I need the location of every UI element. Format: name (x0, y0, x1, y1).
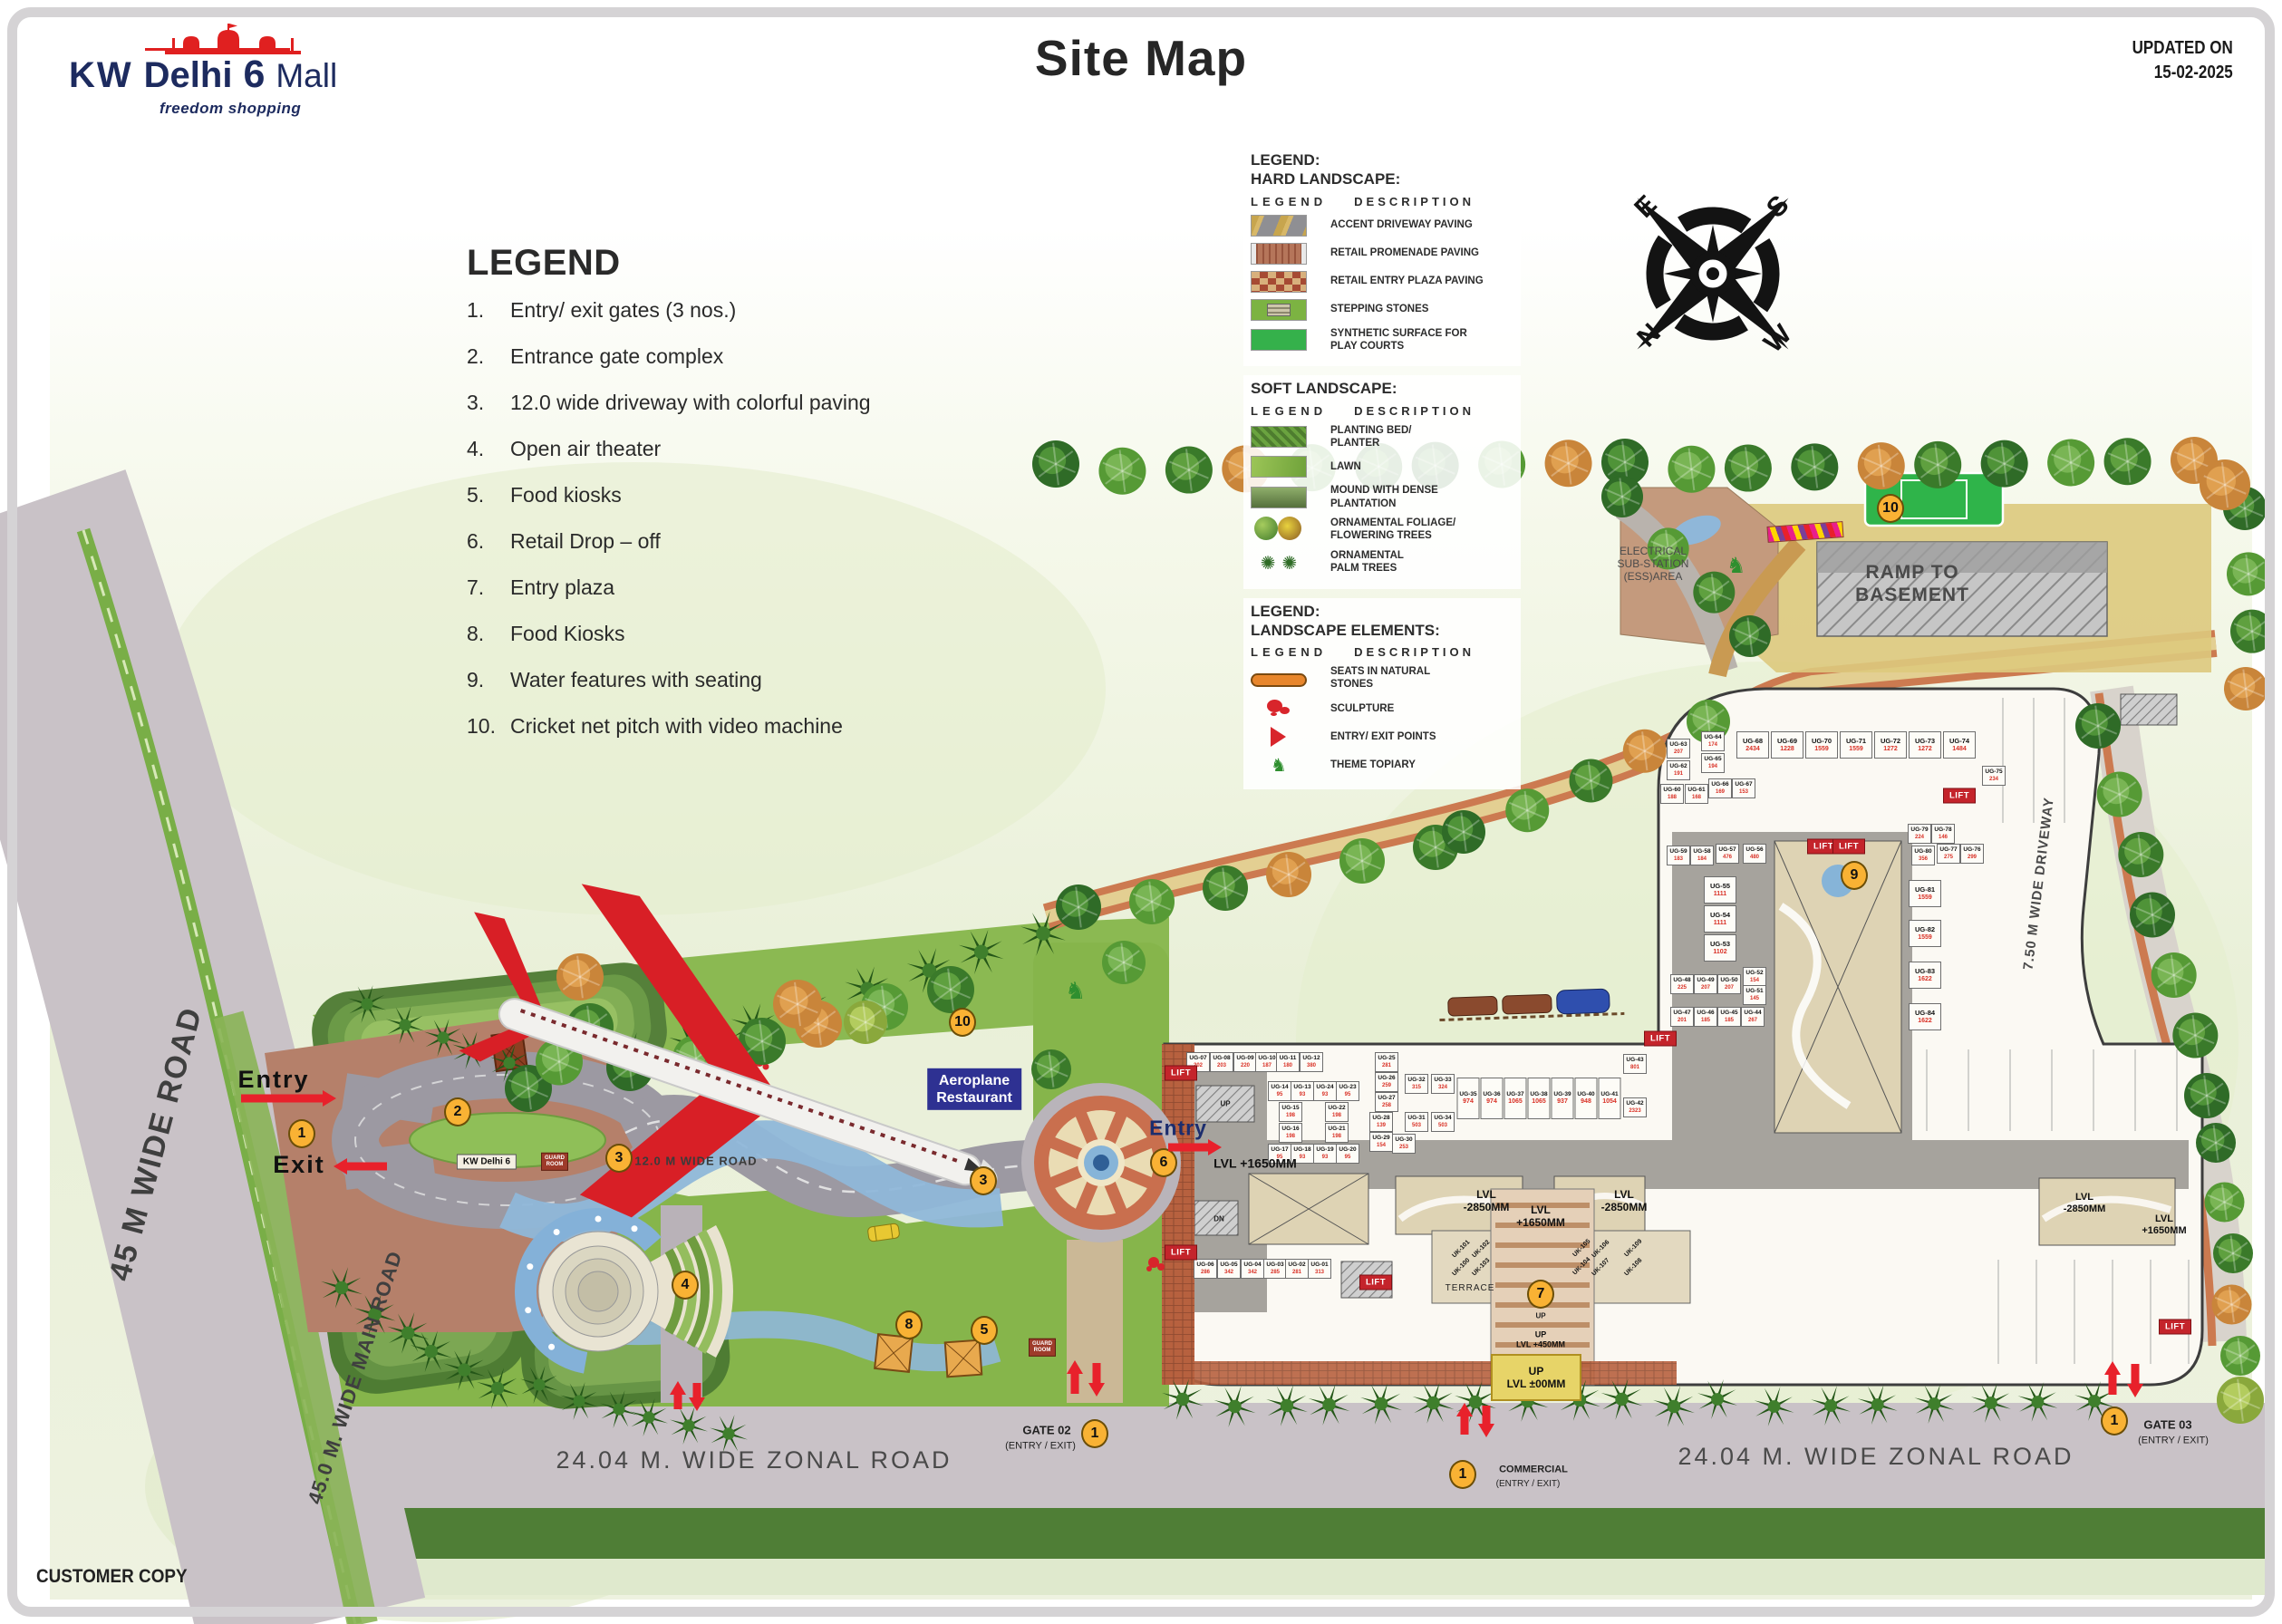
tree-icon (2205, 1183, 2245, 1223)
unit-ug-49: UG-49207 (1694, 974, 1717, 994)
direction-arrow-icon (1481, 1406, 1492, 1436)
map-label: LVL +1650MM (1516, 1203, 1565, 1229)
badge-10: 10 (1877, 494, 1904, 523)
tree-icon (1693, 572, 1735, 614)
map-label: 24.04 M. WIDE ZONAL ROAD (1678, 1443, 2074, 1472)
unit-ug-04: UG-04342 (1241, 1259, 1264, 1279)
unit-ug-48: UG-48225 (1670, 974, 1694, 994)
unit-ug-58: UG-58184 (1690, 846, 1714, 865)
direction-arrow-icon (1091, 1363, 1102, 1396)
badge-3: 3 (970, 1166, 997, 1195)
map-label: COMMERCIAL (1499, 1464, 1568, 1476)
unit-ug-14: UG-1495 (1268, 1081, 1291, 1101)
unit-ug-65: UG-65194 (1701, 753, 1725, 773)
legend-swatch-item: PLANTING BED/ PLANTER (1251, 424, 1513, 450)
unit-ug-31: UG-31503 (1405, 1112, 1428, 1132)
tree-icon (1545, 440, 1592, 487)
unit-ug-70: UG-701559 (1805, 731, 1838, 759)
tree-icon (2217, 1377, 2264, 1424)
map-label: DN (1214, 1214, 1224, 1223)
site-map-page: ♞ ♞ N E (0, 0, 2282, 1624)
unit-ug-12: UG-12380 (1300, 1052, 1323, 1072)
tree-icon (2220, 1336, 2260, 1376)
tree-icon (2097, 772, 2142, 817)
tree-icon (1098, 448, 1146, 495)
legend-item: 9.Water features with seating (467, 668, 871, 692)
unit-ug-02: UG-02281 (1285, 1259, 1309, 1279)
tree-icon (1031, 1049, 1071, 1089)
entry-exit-points-icon (1251, 726, 1307, 748)
unit-ug-62: UG-62191 (1667, 760, 1690, 780)
legend-item: 3.12.0 wide driveway with colorful pavin… (467, 391, 871, 415)
ornamental-trees-icon (1251, 518, 1307, 540)
unit-ug-05: UG-05342 (1217, 1259, 1241, 1279)
unit-ug-55: UG-551111 (1704, 876, 1736, 904)
legend-swatch-item: SYNTHETIC SURFACE FOR PLAY COURTS (1251, 327, 1513, 353)
road-green-strip (299, 1508, 2273, 1559)
badge-1: 1 (2101, 1406, 2128, 1435)
unit-ug-33: UG-33324 (1431, 1074, 1455, 1094)
badge-4: 4 (672, 1271, 699, 1300)
tree-icon (1725, 445, 1772, 492)
unit-ug-24: UG-2493 (1313, 1081, 1337, 1101)
lift-label: LIFT (1832, 839, 1865, 855)
unit-ug-35: UG-35974 (1457, 1078, 1480, 1119)
direction-arrow-icon (2107, 1362, 2118, 1395)
legend-swatch-item: LAWN (1251, 456, 1513, 478)
tree-icon (2184, 1073, 2229, 1118)
stepping-stones-icon (1251, 299, 1307, 321)
tree-icon (2104, 438, 2151, 485)
lift-label: LIFT (1644, 1031, 1677, 1047)
compass-rose-icon: N E S W (1602, 163, 1823, 384)
unit-ug-22: UG-22198 (1325, 1102, 1349, 1122)
unit-ug-34: UG-34503 (1431, 1112, 1455, 1132)
tree-icon (1981, 440, 2028, 488)
direction-arrow-icon (241, 1093, 335, 1104)
unit-ug-53: UG-531102 (1704, 934, 1736, 962)
unit-ug-57: UG-57476 (1716, 844, 1739, 864)
legend-swatch-item: STEPPING STONES (1251, 299, 1513, 321)
lift-label: LIFT (1359, 1275, 1392, 1290)
legend-swatch-item: ORNAMENTAL FOLIAGE/ FLOWERING TREES (1251, 517, 1513, 543)
logo-6: 6 (243, 53, 265, 97)
direction-arrow-icon (2130, 1364, 2141, 1397)
unit-ug-06: UG-06286 (1194, 1259, 1217, 1279)
tree-icon (927, 966, 974, 1013)
guard-room-sign: GUARD ROOM (541, 1153, 568, 1171)
unit-ug-27: UG-27258 (1375, 1092, 1398, 1112)
tree-icon (773, 980, 822, 1029)
map-label: LVL -2850MM (1601, 1188, 1648, 1213)
unit-ug-56: UG-56480 (1743, 844, 1766, 864)
aeroplane-restaurant-sign: AeroplaneRestaurant (927, 1068, 1021, 1110)
badge-1: 1 (1449, 1460, 1476, 1489)
legend-item: 8.Food Kiosks (467, 622, 871, 646)
unit-ug-73: UG-731272 (1909, 731, 1941, 759)
map-label: 24.04 M. WIDE ZONAL ROAD (556, 1446, 952, 1475)
tree-icon (1102, 941, 1146, 984)
map-label: (ENTRY / EXIT) (2138, 1435, 2209, 1447)
legend-swatch-item: THEME TOPIARY (1251, 754, 1513, 776)
unit-ug-83: UG-831622 (1909, 962, 1941, 989)
unit-ug-21: UG-21198 (1325, 1123, 1349, 1143)
unit-ug-84: UG-841622 (1909, 1003, 1941, 1030)
legend-panels: LEGEND: HARD LANDSCAPE: LEGENDDESCRIPTIO… (1243, 147, 1521, 798)
legend-swatch-item: SEATS IN NATURAL STONES (1251, 665, 1513, 691)
tree-icon (1266, 852, 1311, 897)
badge-1: 1 (1081, 1419, 1108, 1448)
tree-icon (2212, 1285, 2252, 1325)
unit-ug-39: UG-39937 (1552, 1078, 1574, 1119)
seats-natural-stones-icon (1251, 673, 1307, 687)
ornamental-palms-icon (1251, 551, 1307, 573)
tree-icon (2230, 610, 2274, 653)
legend-swatch-item: MOUND WITH DENSE PLANTATION (1251, 484, 1513, 510)
tree-icon (1032, 440, 1079, 488)
tree-icon (2224, 667, 2267, 710)
unit-ug-13: UG-1393 (1291, 1081, 1314, 1101)
map-label: Entry (237, 1066, 309, 1095)
unit-ug-09: UG-09220 (1233, 1052, 1257, 1072)
legend-list: LEGEND 1.Entry/ exit gates (3 nos.)2.Ent… (467, 243, 871, 760)
lawn-icon (1251, 456, 1307, 478)
unit-ug-26: UG-26259 (1375, 1072, 1398, 1092)
unit-ug-54: UG-541111 (1704, 905, 1736, 933)
lift-label: LIFT (1943, 788, 1976, 804)
tree-icon (1570, 759, 1613, 803)
page-title: Site Map (1035, 29, 1247, 87)
map-label: LVL +1650MM (2142, 1213, 2186, 1237)
tree-icon (1623, 730, 1667, 773)
unit-ug-77: UG-77275 (1937, 844, 1960, 864)
map-label: 12.0 M WIDE ROAD (634, 1154, 757, 1167)
unit-ug-25: UG-25281 (1375, 1052, 1398, 1072)
badge-7: 7 (1527, 1280, 1554, 1309)
map-label: LVL -2850MM (2064, 1192, 2105, 1215)
red-fort-icon (165, 20, 301, 56)
map-label: GATE 02 (1022, 1423, 1070, 1436)
unit-ug-67: UG-67153 (1732, 778, 1755, 798)
unit-ug-44: UG-44267 (1741, 1007, 1765, 1027)
stairs (2121, 694, 2177, 725)
badge-8: 8 (895, 1310, 923, 1339)
unit-ug-23: UG-2395 (1336, 1081, 1359, 1101)
updated-on: UPDATED ON 15-02-2025 (2132, 36, 2233, 85)
badge-2: 2 (444, 1097, 471, 1126)
unit-ug-74: UG-741484 (1943, 731, 1976, 759)
tree-icon (1858, 442, 1905, 489)
tree-icon (1729, 615, 1771, 657)
direction-arrow-icon (334, 1161, 387, 1172)
logo: KWDelhi6Mall freedom shopping (69, 20, 337, 118)
tree-icon (1129, 879, 1175, 924)
lift-label: LIFT (2159, 1319, 2191, 1335)
unit-ug-50: UG-50207 (1717, 974, 1741, 994)
landscape-elements-legend: LEGEND: LANDSCAPE ELEMENTS: LEGENDDESCRI… (1243, 598, 1521, 789)
tree-icon (2200, 459, 2250, 510)
unit-ug-71: UG-711559 (1840, 731, 1872, 759)
map-label: UP (1220, 1099, 1230, 1107)
unit-ug-61: UG-61168 (1685, 784, 1708, 804)
unit-ug-75: UG-75234 (1982, 766, 2006, 786)
legend-item: 1.Entry/ exit gates (3 nos.) (467, 298, 871, 323)
badge-9: 9 (1841, 861, 1868, 890)
unit-ug-43: UG-43801 (1623, 1054, 1647, 1074)
tree-icon (556, 953, 604, 1000)
direction-arrow-icon (1459, 1404, 1470, 1435)
legend-item: 5.Food kiosks (467, 483, 871, 507)
mound-icon (1251, 487, 1307, 508)
legend-swatch-item: SCULPTURE (1251, 698, 1513, 720)
tree-icon (1056, 884, 1101, 930)
accent-driveway-icon (1251, 215, 1307, 237)
tree-icon (2213, 1233, 2253, 1273)
tree-icon (1442, 810, 1485, 854)
unit-ug-28: UG-28139 (1369, 1112, 1393, 1132)
legend-item: 10.Cricket net pitch with video machine (467, 714, 871, 739)
badge-5: 5 (971, 1316, 998, 1345)
unit-ug-68: UG-682434 (1736, 731, 1769, 759)
badge-1: 1 (288, 1119, 315, 1148)
unit-ug-40: UG-40948 (1575, 1078, 1598, 1119)
theme-topiary-icon: ♞ (1726, 553, 1746, 578)
kw-delhi-6-sign: KW Delhi 6 (457, 1155, 517, 1170)
logo-tagline: freedom shopping (160, 100, 337, 118)
badge-3: 3 (605, 1144, 633, 1173)
logo-kw: KW (69, 55, 133, 96)
theme-topiary-icon (1251, 754, 1307, 776)
unit-ug-63: UG-63207 (1667, 739, 1690, 759)
lift-label: LIFT (1165, 1066, 1197, 1081)
map-label: Entry (1149, 1116, 1207, 1140)
tree-icon (1668, 446, 1715, 493)
tree-icon (2172, 1013, 2218, 1058)
map-label: UP LVL +450MM (1516, 1329, 1565, 1348)
tree-icon (1339, 838, 1385, 884)
legend-swatch-item: ENTRY/ EXIT POINTS (1251, 726, 1513, 748)
unit-ug-42: UG-422323 (1623, 1097, 1647, 1117)
direction-arrow-icon (1168, 1142, 1221, 1153)
legend-swatch-item: ACCENT DRIVEWAY PAVING (1251, 215, 1513, 237)
unit-ug-30: UG-30253 (1392, 1134, 1416, 1154)
unit-ug-66: UG-66169 (1708, 778, 1732, 798)
unit-ug-59: UG-59183 (1667, 846, 1690, 865)
guard-room-sign: GUARD ROOM (1029, 1339, 1056, 1357)
tree-icon (1791, 443, 1838, 490)
unit-ug-15: UG-15198 (1279, 1102, 1302, 1122)
unit-ug-80: UG-80356 (1911, 846, 1935, 865)
lift-label: LIFT (1165, 1245, 1197, 1261)
tree-icon (2047, 439, 2094, 486)
unit-ug-82: UG-821559 (1909, 920, 1941, 947)
unit-ug-03: UG-03285 (1263, 1259, 1287, 1279)
legend-swatch-item: RETAIL PROMENADE PAVING (1251, 243, 1513, 265)
legend-item: 2.Entrance gate complex (467, 344, 871, 369)
map-label: (ENTRY / EXIT) (1496, 1479, 1561, 1490)
soft-landscape-legend: SOFT LANDSCAPE: LEGENDDESCRIPTION PLANTI… (1243, 375, 1521, 588)
unit-ug-64: UG-64174 (1701, 731, 1725, 751)
unit-ug-11: UG-11180 (1276, 1052, 1300, 1072)
unit-ug-08: UG-08203 (1210, 1052, 1233, 1072)
legend-swatch-item: ORNAMENTAL PALM TREES (1251, 549, 1513, 575)
unit-ug-72: UG-721272 (1874, 731, 1907, 759)
badge-10: 10 (949, 1008, 976, 1037)
sculpture-icon (1251, 698, 1307, 720)
unit-ug-01: UG-01313 (1308, 1259, 1331, 1279)
tree-icon (2118, 832, 2163, 877)
tree-icon (1165, 447, 1213, 494)
unit-ug-16: UG-16198 (1279, 1123, 1302, 1143)
tree-icon (2075, 703, 2121, 749)
unit-ug-41: UG-411054 (1599, 1078, 1621, 1119)
updated-label: UPDATED ON (2132, 36, 2233, 61)
unit-ug-81: UG-811559 (1909, 880, 1941, 907)
unit-ug-32: UG-32315 (1405, 1074, 1428, 1094)
legend-swatch-item: RETAIL ENTRY PLAZA PAVING (1251, 271, 1513, 293)
map-label: UP (1535, 1311, 1545, 1319)
map-label: LVL +1650MM (1214, 1156, 1297, 1172)
map-label: LVL -2850MM (1464, 1188, 1510, 1213)
legend-title: LEGEND (467, 243, 871, 284)
unit-ug-36: UG-36974 (1481, 1078, 1504, 1119)
unit-ug-52: UG-52154 (1743, 967, 1766, 987)
retail-promenade (1162, 1044, 1194, 1385)
tree-icon (1601, 476, 1643, 517)
retail-entry-plaza-icon (1251, 271, 1307, 293)
tree-icon (2196, 1123, 2236, 1163)
unit-ug-69: UG-691228 (1771, 731, 1803, 759)
tree-icon (1203, 865, 1248, 911)
unit-ug-79: UG-79224 (1908, 824, 1931, 844)
map-label: GATE 03 (2143, 1417, 2191, 1431)
legend-item: 4.Open air theater (467, 437, 871, 461)
map-label: Exit (273, 1151, 325, 1180)
map-label: TERRACE (1446, 1283, 1495, 1294)
map-label: RAMP TO BASEMENT (1855, 562, 1969, 607)
synthetic-surface-icon (1251, 329, 1307, 351)
tree-icon (2227, 552, 2270, 595)
unit-ug-60: UG-60188 (1660, 784, 1684, 804)
logo-delhi: Delhi (144, 55, 233, 96)
unit-ug-29: UG-29154 (1369, 1132, 1393, 1152)
tree-icon (844, 1000, 887, 1044)
legend-item: 7.Entry plaza (467, 575, 871, 600)
updated-date: 15-02-2025 (2132, 61, 2233, 85)
unit-ug-78: UG-78146 (1931, 824, 1955, 844)
retail-promenade-icon (1251, 243, 1307, 265)
unit-ug-47: UG-47201 (1670, 1007, 1694, 1027)
unit-ug-20: UG-2095 (1336, 1144, 1359, 1164)
direction-arrow-icon (1069, 1361, 1080, 1394)
map-label: (ENTRY / EXIT) (1005, 1441, 1076, 1453)
map-label: ELECTRICAL SUB-STATION (ESS)AREA (1618, 545, 1689, 583)
logo-mall: Mall (276, 57, 337, 95)
unit-ug-46: UG-46185 (1694, 1007, 1717, 1027)
tree-icon (1914, 441, 1961, 488)
unit-ug-19: UG-1993 (1313, 1144, 1337, 1164)
hard-landscape-legend: LEGEND: HARD LANDSCAPE: LEGENDDESCRIPTIO… (1243, 147, 1521, 366)
unit-ug-45: UG-45185 (1717, 1007, 1741, 1027)
legend-item: 6.Retail Drop – off (467, 529, 871, 554)
theme-topiary-icon: ♞ (1065, 978, 1086, 1005)
direction-arrow-icon (672, 1382, 683, 1409)
direction-arrow-icon (691, 1383, 702, 1410)
tree-icon (2151, 952, 2197, 998)
map-label: UP LVL ±00MM (1507, 1365, 1566, 1390)
unit-ug-51: UG-51145 (1743, 985, 1766, 1005)
unit-ug-38: UG-381065 (1528, 1078, 1551, 1119)
unit-ug-37: UG-371065 (1504, 1078, 1527, 1119)
tree-icon (2130, 893, 2175, 938)
planting-bed-icon (1251, 426, 1307, 448)
customer-copy: CUSTOMER COPY (36, 1566, 188, 1588)
unit-ug-76: UG-76299 (1960, 844, 1984, 864)
